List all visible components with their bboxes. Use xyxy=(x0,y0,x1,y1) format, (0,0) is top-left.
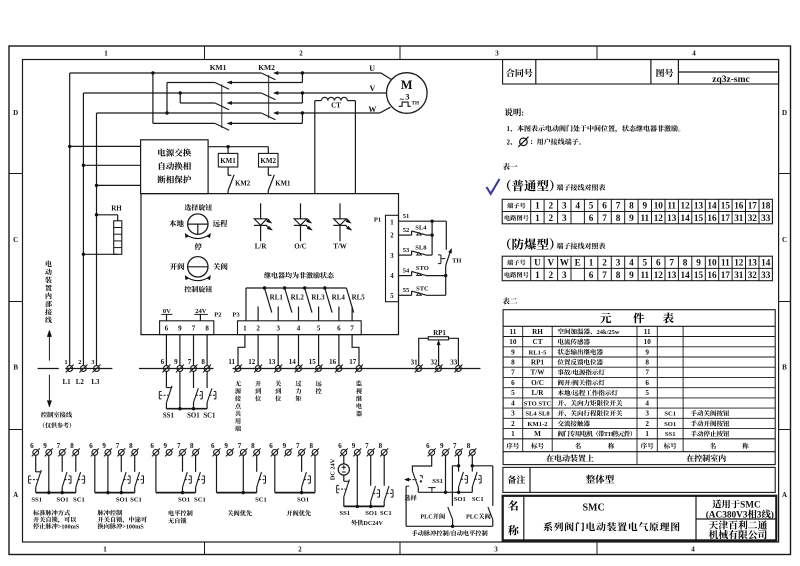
svg-text:): ) xyxy=(771,510,774,521)
svg-text:2: 2 xyxy=(390,233,394,240)
svg-text:>100mS: >100mS xyxy=(58,523,80,530)
svg-text:6: 6 xyxy=(426,442,430,450)
svg-text:6: 6 xyxy=(589,270,594,280)
svg-text:15: 15 xyxy=(309,358,317,366)
svg-text:SC1: SC1 xyxy=(380,510,392,517)
svg-text:1: 1 xyxy=(103,546,107,554)
svg-text:2: 2 xyxy=(645,420,649,428)
svg-text:9: 9 xyxy=(645,348,649,356)
svg-text:CT: CT xyxy=(533,338,543,346)
svg-text:STO STC: STO STC xyxy=(524,400,552,407)
svg-text:SC1: SC1 xyxy=(203,413,216,420)
svg-text:11: 11 xyxy=(721,257,730,267)
svg-text:3: 3 xyxy=(390,253,394,260)
svg-text:9: 9 xyxy=(283,442,287,450)
svg-text:5: 5 xyxy=(589,201,594,211)
svg-text:P3: P3 xyxy=(232,312,240,319)
svg-text:PLC: PLC xyxy=(420,514,432,521)
svg-text:11: 11 xyxy=(667,201,676,211)
svg-text:1: 1 xyxy=(589,257,594,267)
svg-text:6: 6 xyxy=(165,325,169,333)
svg-text:1: 1 xyxy=(535,201,540,211)
svg-text:8: 8 xyxy=(379,442,383,450)
svg-text:1: 1 xyxy=(104,50,108,58)
svg-text:9: 9 xyxy=(174,358,178,366)
svg-text:7: 7 xyxy=(238,442,242,450)
svg-text:CT: CT xyxy=(331,102,341,110)
svg-text:7: 7 xyxy=(616,201,621,211)
svg-text:9: 9 xyxy=(178,325,182,333)
svg-text:T/W: T/W xyxy=(333,242,347,250)
svg-text:C: C xyxy=(782,236,787,244)
svg-text::: : xyxy=(521,107,524,117)
svg-text:10: 10 xyxy=(644,338,652,346)
svg-text:2: 2 xyxy=(602,257,607,267)
svg-text:>100mS: >100mS xyxy=(122,523,144,530)
svg-text:L/R: L/R xyxy=(532,389,545,397)
svg-text:KM2: KM2 xyxy=(258,63,275,72)
svg-text:SMC: SMC xyxy=(740,501,761,511)
svg-text:1: 1 xyxy=(511,430,515,438)
svg-text:U: U xyxy=(534,257,541,267)
svg-text:17: 17 xyxy=(721,270,731,280)
svg-text:RL5: RL5 xyxy=(352,293,366,301)
svg-text:/: / xyxy=(570,390,573,397)
svg-text:SS1: SS1 xyxy=(432,478,443,485)
svg-text:2: 2 xyxy=(549,213,554,223)
svg-text:PLC: PLC xyxy=(466,514,478,521)
svg-text:2: 2 xyxy=(549,270,554,280)
svg-text:7: 7 xyxy=(192,325,196,333)
svg-text:32: 32 xyxy=(748,213,758,223)
svg-text:14: 14 xyxy=(761,257,771,267)
svg-text:17: 17 xyxy=(349,358,357,366)
svg-text:6: 6 xyxy=(337,325,341,333)
svg-text:SO1: SO1 xyxy=(116,497,128,504)
svg-text:DC 24V: DC 24V xyxy=(329,458,336,480)
svg-text:B: B xyxy=(782,364,787,372)
svg-text:D: D xyxy=(13,109,18,117)
svg-text:18: 18 xyxy=(761,201,771,211)
svg-text:STC: STC xyxy=(416,285,429,292)
svg-text:6: 6 xyxy=(602,201,607,211)
svg-text:7: 7 xyxy=(116,442,120,450)
svg-text:13: 13 xyxy=(667,270,677,280)
svg-text:SO1: SO1 xyxy=(664,421,676,428)
svg-text:5: 5 xyxy=(643,257,648,267)
svg-text:11: 11 xyxy=(644,328,651,336)
svg-text:RP1: RP1 xyxy=(433,329,446,337)
svg-text:7: 7 xyxy=(57,442,61,450)
svg-text:9: 9 xyxy=(102,442,106,450)
svg-text:(AC380V3: (AC380V3 xyxy=(706,510,748,521)
svg-text:L/R: L/R xyxy=(255,242,268,250)
svg-text:W: W xyxy=(368,105,376,114)
svg-text:RL1: RL1 xyxy=(270,293,284,301)
svg-text:L3: L3 xyxy=(91,378,100,386)
svg-text:10: 10 xyxy=(509,338,517,346)
svg-text:11: 11 xyxy=(228,358,235,366)
svg-text:9: 9 xyxy=(629,270,634,280)
svg-text:9: 9 xyxy=(511,348,515,356)
svg-text:9: 9 xyxy=(352,442,356,450)
svg-text:14: 14 xyxy=(289,358,297,366)
svg-text:RH: RH xyxy=(532,328,543,336)
svg-text:4: 4 xyxy=(390,273,394,280)
svg-text:SO1: SO1 xyxy=(454,496,466,503)
svg-text:7: 7 xyxy=(365,442,369,450)
svg-text:1: 1 xyxy=(64,359,67,366)
svg-text:32: 32 xyxy=(431,359,439,367)
svg-text:1: 1 xyxy=(507,125,511,133)
svg-text:KM1: KM1 xyxy=(210,63,227,72)
svg-text:16: 16 xyxy=(734,201,744,211)
svg-text:U: U xyxy=(369,64,375,73)
svg-text:7: 7 xyxy=(669,257,674,267)
svg-text:3: 3 xyxy=(405,92,409,102)
svg-text:2: 2 xyxy=(511,420,515,428)
svg-text:A: A xyxy=(13,491,18,499)
svg-text:55: 55 xyxy=(403,287,410,294)
svg-text:8: 8 xyxy=(190,442,194,450)
svg-text:P2: P2 xyxy=(214,312,221,319)
svg-text:3: 3 xyxy=(511,410,515,418)
svg-text:12: 12 xyxy=(654,270,664,280)
svg-text:1: 1 xyxy=(390,219,394,226)
svg-text:7: 7 xyxy=(602,270,607,280)
svg-text:12: 12 xyxy=(681,201,691,211)
svg-text:8: 8 xyxy=(645,359,649,367)
svg-text:13: 13 xyxy=(268,358,276,366)
svg-text:5: 5 xyxy=(390,293,394,300)
svg-text:M: M xyxy=(401,78,413,92)
svg-text:6: 6 xyxy=(656,257,661,267)
svg-text:6: 6 xyxy=(161,358,165,366)
svg-text:8: 8 xyxy=(309,442,313,450)
svg-text:31: 31 xyxy=(411,359,419,367)
svg-text:5: 5 xyxy=(645,389,649,397)
svg-text:13: 13 xyxy=(667,213,677,223)
svg-text:D: D xyxy=(782,109,787,117)
svg-text:RL3: RL3 xyxy=(311,293,325,301)
svg-text:8: 8 xyxy=(205,325,209,333)
svg-text:7: 7 xyxy=(602,213,607,223)
svg-text:8: 8 xyxy=(629,201,634,211)
svg-text:9: 9 xyxy=(440,442,444,450)
svg-text:3: 3 xyxy=(276,325,280,333)
svg-text:31: 31 xyxy=(734,270,744,280)
svg-text:3: 3 xyxy=(616,257,621,267)
svg-text:8: 8 xyxy=(129,442,133,450)
svg-text:9: 9 xyxy=(629,213,634,223)
svg-text:14: 14 xyxy=(707,201,717,211)
svg-text:33: 33 xyxy=(450,359,458,367)
svg-text:6: 6 xyxy=(511,379,515,387)
svg-text:2: 2 xyxy=(299,50,303,58)
svg-text:54: 54 xyxy=(403,267,410,274)
svg-text:O/C: O/C xyxy=(294,242,306,250)
svg-text:KM1-2: KM1-2 xyxy=(527,421,548,428)
svg-text:SO1: SO1 xyxy=(178,497,190,504)
svg-text:RH: RH xyxy=(111,205,122,213)
svg-text:TH: TH xyxy=(412,101,420,107)
svg-text:6: 6 xyxy=(211,442,215,450)
svg-text:7: 7 xyxy=(296,442,300,450)
svg-text:1: 1 xyxy=(535,270,540,280)
svg-text:31: 31 xyxy=(734,213,744,223)
svg-text:KM1: KM1 xyxy=(275,180,291,187)
svg-text:3: 3 xyxy=(562,201,567,211)
svg-text:33: 33 xyxy=(761,213,771,223)
svg-text:1: 1 xyxy=(535,213,540,223)
svg-text:SL8: SL8 xyxy=(415,244,427,251)
svg-text:9: 9 xyxy=(224,442,228,450)
svg-text:3: 3 xyxy=(757,511,762,521)
svg-text:6: 6 xyxy=(30,442,34,450)
svg-text:A: A xyxy=(782,491,787,499)
svg-text:RL1-5: RL1-5 xyxy=(529,349,548,356)
svg-text:/: / xyxy=(570,380,573,387)
svg-text:6: 6 xyxy=(645,379,649,387)
svg-text:SO1: SO1 xyxy=(365,510,377,517)
svg-text:10: 10 xyxy=(654,201,664,211)
svg-text:V: V xyxy=(547,257,554,267)
svg-text:3: 3 xyxy=(645,410,649,418)
svg-text:14: 14 xyxy=(681,213,691,223)
svg-text:8: 8 xyxy=(251,442,255,450)
svg-text:C: C xyxy=(13,236,18,244)
svg-text:8: 8 xyxy=(683,257,688,267)
svg-text:15: 15 xyxy=(694,270,704,280)
svg-text:3: 3 xyxy=(494,546,498,554)
svg-text:4: 4 xyxy=(645,399,649,407)
svg-text:T/W: T/W xyxy=(531,369,546,377)
svg-text:4: 4 xyxy=(629,257,634,267)
svg-text:3: 3 xyxy=(562,270,567,280)
svg-text:12: 12 xyxy=(734,257,744,267)
svg-text:12: 12 xyxy=(248,358,256,366)
svg-text:5: 5 xyxy=(511,389,515,397)
svg-text:/: / xyxy=(570,370,573,377)
svg-text:L1: L1 xyxy=(63,378,72,386)
svg-text:2: 2 xyxy=(507,138,511,146)
svg-text:SL4 SL8: SL4 SL8 xyxy=(525,411,550,418)
svg-text:1: 1 xyxy=(645,430,649,438)
svg-text:15: 15 xyxy=(721,201,731,211)
svg-text:8: 8 xyxy=(201,358,205,366)
svg-text:2: 2 xyxy=(549,201,554,211)
svg-text:17: 17 xyxy=(748,201,758,211)
svg-text:M: M xyxy=(534,430,541,438)
svg-text:/: / xyxy=(448,530,451,537)
svg-text:7: 7 xyxy=(350,325,354,333)
svg-text:24k/25w: 24k/25w xyxy=(597,329,620,336)
svg-text:53: 53 xyxy=(403,247,410,254)
svg-text:SL4: SL4 xyxy=(415,225,427,232)
svg-text:16: 16 xyxy=(329,358,337,366)
svg-text:B: B xyxy=(13,364,18,372)
svg-text:RL4: RL4 xyxy=(332,293,346,301)
svg-text:6: 6 xyxy=(589,213,594,223)
svg-text:O/C: O/C xyxy=(531,379,544,387)
svg-text:SO1: SO1 xyxy=(57,497,69,504)
svg-text:TH: TH xyxy=(452,257,461,264)
svg-text:52: 52 xyxy=(403,227,410,234)
svg-text:L2: L2 xyxy=(76,378,85,386)
svg-text:STO: STO xyxy=(416,265,429,272)
svg-text:8: 8 xyxy=(616,270,621,280)
svg-text:1: 1 xyxy=(243,325,247,333)
svg-text:6: 6 xyxy=(338,442,342,450)
svg-text:33: 33 xyxy=(761,270,771,280)
svg-text:SC1: SC1 xyxy=(194,497,206,504)
svg-text:TH: TH xyxy=(604,431,613,438)
svg-text:10: 10 xyxy=(707,257,717,267)
svg-text:SC1: SC1 xyxy=(130,497,142,504)
svg-text:RP1: RP1 xyxy=(531,359,545,367)
svg-text:16: 16 xyxy=(707,270,717,280)
svg-text:12: 12 xyxy=(654,213,664,223)
svg-text:3: 3 xyxy=(562,213,567,223)
svg-text:SO1: SO1 xyxy=(187,413,200,420)
svg-text:6: 6 xyxy=(89,442,93,450)
svg-text:SMC: SMC xyxy=(582,502,604,513)
svg-text:DC24V: DC24V xyxy=(363,520,383,527)
svg-text:SC1: SC1 xyxy=(255,497,267,504)
svg-text:4: 4 xyxy=(692,50,696,58)
svg-text:SC1: SC1 xyxy=(664,411,676,418)
svg-text:9: 9 xyxy=(43,442,47,450)
svg-text:8: 8 xyxy=(70,442,74,450)
svg-text:11: 11 xyxy=(510,328,517,336)
svg-text:32: 32 xyxy=(748,270,758,280)
svg-text:14: 14 xyxy=(681,270,691,280)
svg-text:8: 8 xyxy=(616,213,621,223)
svg-text:9: 9 xyxy=(643,201,648,211)
svg-text:V: V xyxy=(370,84,376,93)
svg-text:5: 5 xyxy=(317,325,321,333)
svg-text:9: 9 xyxy=(164,442,168,450)
svg-text:7: 7 xyxy=(177,442,181,450)
svg-text:W: W xyxy=(560,257,570,267)
svg-text:13: 13 xyxy=(748,257,758,267)
svg-text:6: 6 xyxy=(150,442,154,450)
svg-text:2: 2 xyxy=(256,325,260,333)
svg-text:13: 13 xyxy=(694,201,704,211)
svg-text:zq3z-smc: zq3z-smc xyxy=(712,75,749,85)
svg-text:7: 7 xyxy=(645,369,649,377)
svg-text:SS1: SS1 xyxy=(31,497,42,504)
svg-text:11: 11 xyxy=(640,213,649,223)
svg-text:KM1: KM1 xyxy=(220,157,236,165)
svg-text:9: 9 xyxy=(696,257,701,267)
svg-text:E: E xyxy=(575,257,581,267)
svg-text:17: 17 xyxy=(721,213,731,223)
svg-text:RL2: RL2 xyxy=(291,293,305,301)
svg-text:8: 8 xyxy=(467,442,471,450)
svg-text:2: 2 xyxy=(298,546,302,554)
svg-text:51: 51 xyxy=(403,213,410,220)
svg-text:SS1: SS1 xyxy=(665,431,676,438)
svg-text:16: 16 xyxy=(707,213,717,223)
svg-text:15: 15 xyxy=(694,213,704,223)
svg-text:SC1: SC1 xyxy=(472,496,484,503)
svg-text:4: 4 xyxy=(511,399,515,407)
svg-text:SO1: SO1 xyxy=(297,497,309,504)
svg-text:7: 7 xyxy=(188,358,192,366)
svg-text:SS1: SS1 xyxy=(163,413,175,420)
svg-text:7: 7 xyxy=(453,442,457,450)
svg-text:2: 2 xyxy=(78,359,81,366)
svg-text:6: 6 xyxy=(269,442,273,450)
svg-text:SS1: SS1 xyxy=(339,510,350,517)
svg-text:4: 4 xyxy=(575,201,580,211)
svg-text:KM2: KM2 xyxy=(235,180,251,187)
svg-text:7: 7 xyxy=(511,369,515,377)
svg-text:11: 11 xyxy=(640,270,649,280)
svg-text:8: 8 xyxy=(511,359,515,367)
svg-text:4: 4 xyxy=(297,325,301,333)
svg-text:P1: P1 xyxy=(374,216,381,223)
svg-text:3: 3 xyxy=(495,50,499,58)
svg-text:KM2: KM2 xyxy=(260,157,276,165)
svg-text:4: 4 xyxy=(691,546,695,554)
svg-text:SC1: SC1 xyxy=(73,497,85,504)
